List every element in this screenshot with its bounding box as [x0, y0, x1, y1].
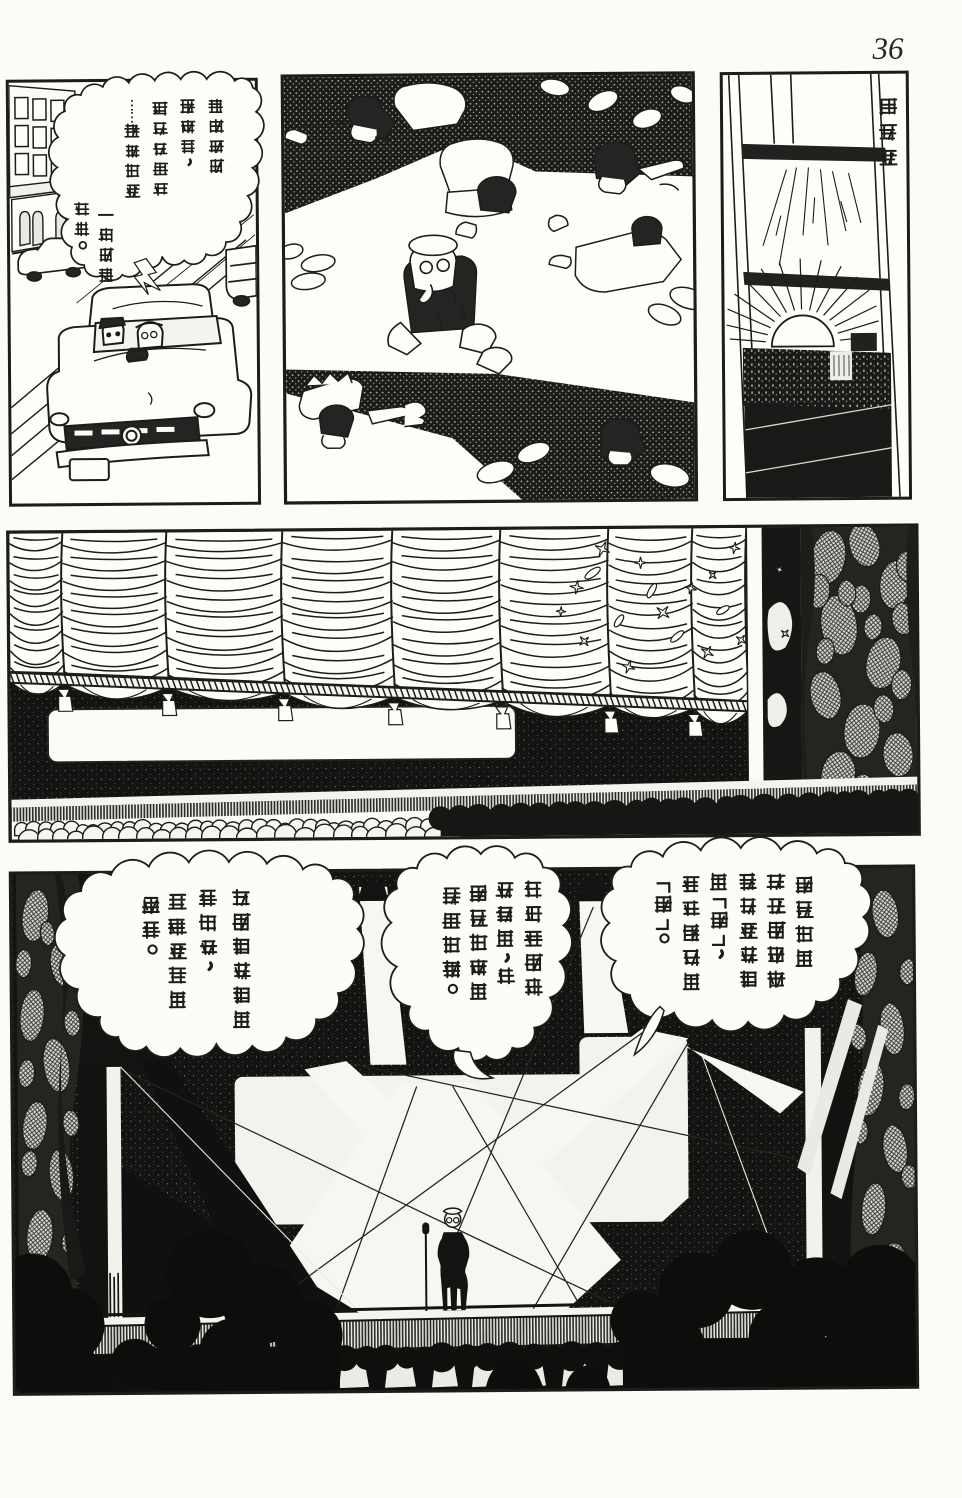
- svg-text:36: 36: [871, 31, 904, 66]
